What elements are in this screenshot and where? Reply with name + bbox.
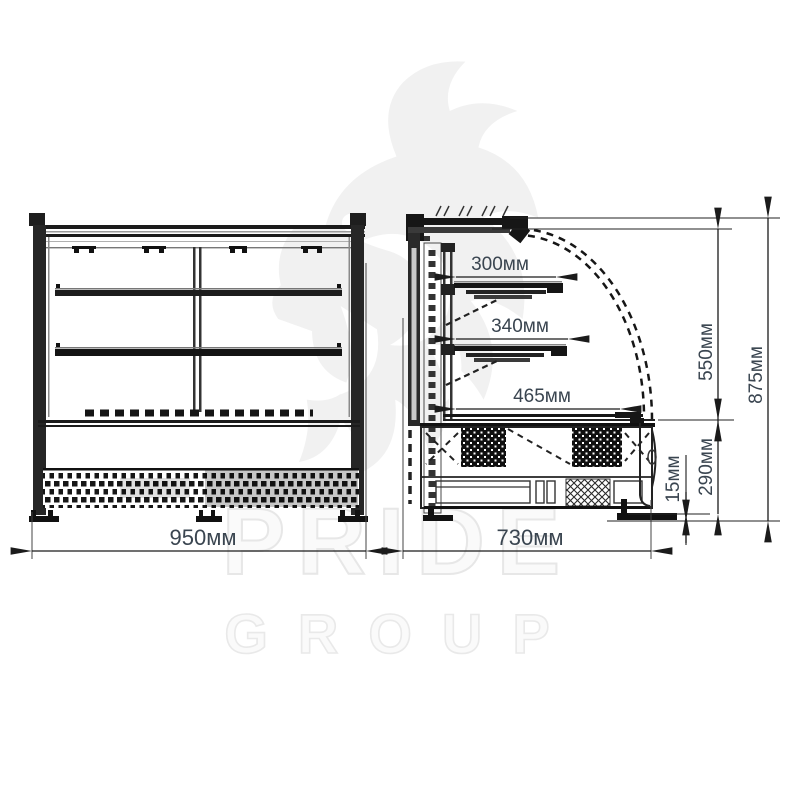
condenser-block-left <box>461 428 506 467</box>
compressor-coil <box>566 479 610 506</box>
front-top-cap-right <box>350 213 366 226</box>
dim-shelf-top-width: 300мм <box>456 254 556 277</box>
front-top-cap-left <box>29 213 45 226</box>
dim-base-height: 290мм <box>696 420 718 514</box>
drawing-canvas: PRIDE GROUP <box>0 0 807 807</box>
dim-base-height-label: 290мм <box>696 438 717 496</box>
dim-display-chamber-height-label: 550мм <box>696 323 717 381</box>
dim-overall-height: 875мм <box>746 218 768 521</box>
watermark: PRIDE GROUP <box>222 61 580 665</box>
watermark-brand-line2: GROUP <box>224 602 579 665</box>
dim-front-width-label: 950мм <box>170 525 237 550</box>
condenser-block-right <box>572 428 622 467</box>
dim-overall-height-label: 875мм <box>746 346 767 404</box>
dim-shelf-top-label: 300мм <box>471 254 529 275</box>
technical-drawing: PRIDE GROUP <box>0 0 807 807</box>
dim-well-depth-label: 465мм <box>513 386 571 407</box>
dim-foot-height: 15мм <box>663 455 686 545</box>
dim-display-chamber-height: 550мм <box>696 229 718 420</box>
dim-shelf-middle-label: 340мм <box>491 316 549 337</box>
ventilation-grille <box>43 468 359 508</box>
dim-side-depth-label: 730мм <box>497 525 564 550</box>
dim-foot-height-label: 15мм <box>663 455 684 502</box>
front-shelf-2 <box>55 343 342 356</box>
center-divider <box>193 247 202 412</box>
